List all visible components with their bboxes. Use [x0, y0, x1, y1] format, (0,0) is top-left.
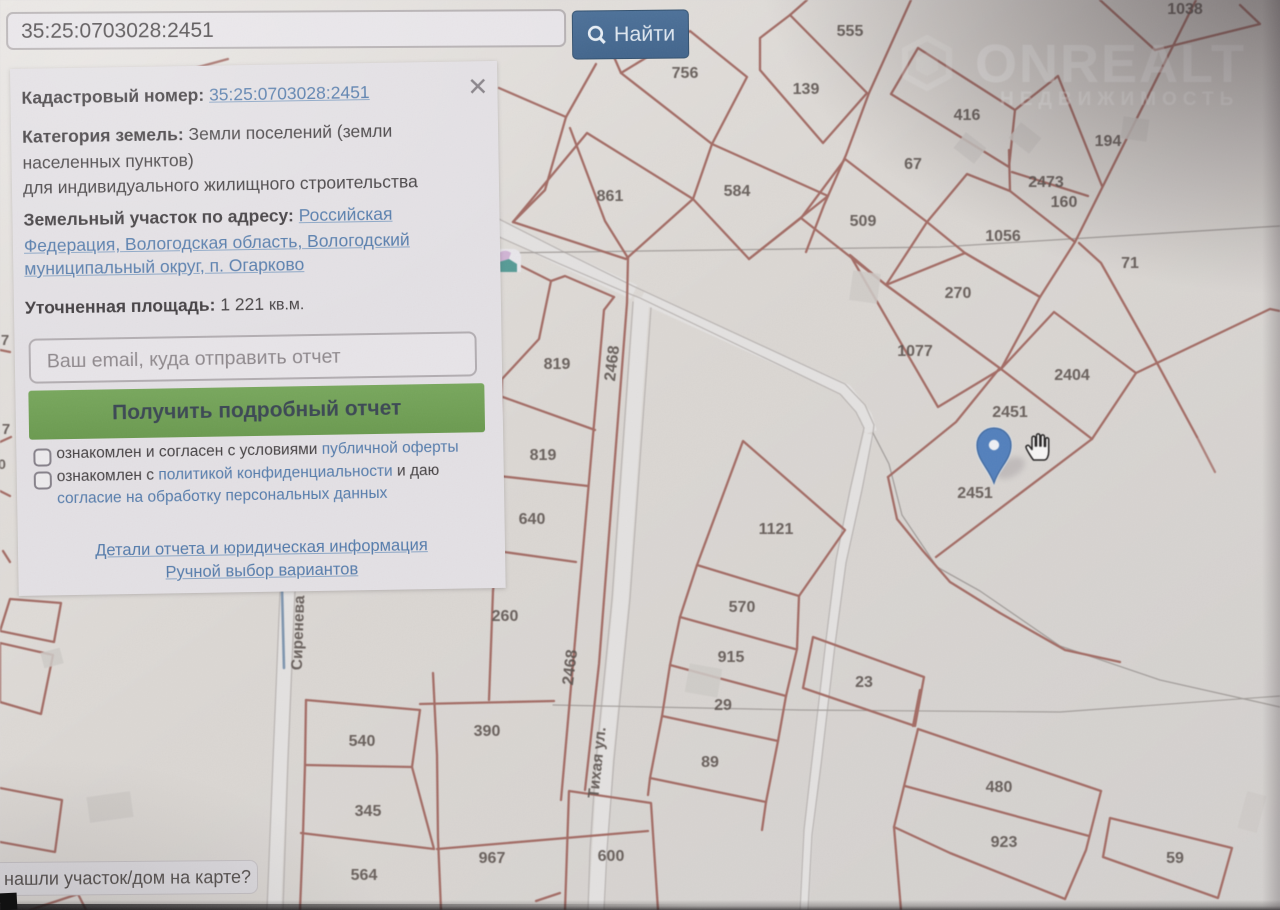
svg-text:67: 67: [904, 156, 922, 173]
svg-text:640: 640: [519, 511, 546, 528]
svg-text:480: 480: [986, 779, 1013, 796]
svg-text:555: 555: [837, 23, 864, 40]
svg-text:1077: 1077: [897, 343, 933, 360]
svg-text:416: 416: [954, 107, 981, 124]
svg-text:НЕДВИЖИМОСТЬ: НЕДВИЖИМОСТЬ: [1000, 89, 1239, 110]
svg-text:2473: 2473: [1028, 174, 1064, 191]
svg-text:2404: 2404: [1054, 367, 1090, 384]
svg-text:967: 967: [479, 850, 506, 867]
svg-text:1038: 1038: [1167, 1, 1203, 18]
svg-text:7: 7: [2, 421, 10, 438]
svg-text:600: 600: [598, 848, 625, 865]
svg-text:ONREALT: ONREALT: [975, 34, 1246, 94]
svg-text:139: 139: [793, 81, 820, 98]
svg-text:194: 194: [1095, 133, 1122, 150]
svg-text:540: 540: [349, 733, 376, 750]
svg-text:819: 819: [544, 356, 571, 373]
svg-text:1056: 1056: [985, 228, 1021, 245]
svg-text:89: 89: [701, 754, 719, 771]
svg-text:160: 160: [1051, 194, 1078, 211]
svg-text:584: 584: [724, 183, 751, 200]
svg-text:1121: 1121: [759, 521, 794, 538]
svg-text:390: 390: [474, 723, 501, 740]
svg-text:570: 570: [729, 599, 756, 616]
svg-text:71: 71: [1121, 255, 1139, 272]
svg-text:0: 0: [0, 456, 6, 472]
svg-text:923: 923: [991, 834, 1018, 851]
svg-text:345: 345: [355, 803, 382, 820]
svg-text:2451: 2451: [992, 404, 1028, 421]
svg-text:2451: 2451: [957, 485, 993, 502]
svg-text:915: 915: [718, 649, 745, 666]
svg-text:23: 23: [855, 674, 873, 691]
svg-text:59: 59: [1166, 850, 1184, 867]
svg-text:756: 756: [672, 65, 699, 82]
svg-text:Сиренева: Сиренева: [289, 595, 309, 671]
svg-text:564: 564: [351, 867, 378, 884]
svg-text:7: 7: [1, 332, 9, 349]
svg-text:861: 861: [597, 188, 624, 205]
svg-text:270: 270: [945, 285, 972, 302]
svg-text:29: 29: [714, 697, 732, 714]
svg-text:260: 260: [492, 608, 519, 625]
svg-text:819: 819: [530, 447, 557, 464]
svg-text:509: 509: [850, 213, 877, 230]
